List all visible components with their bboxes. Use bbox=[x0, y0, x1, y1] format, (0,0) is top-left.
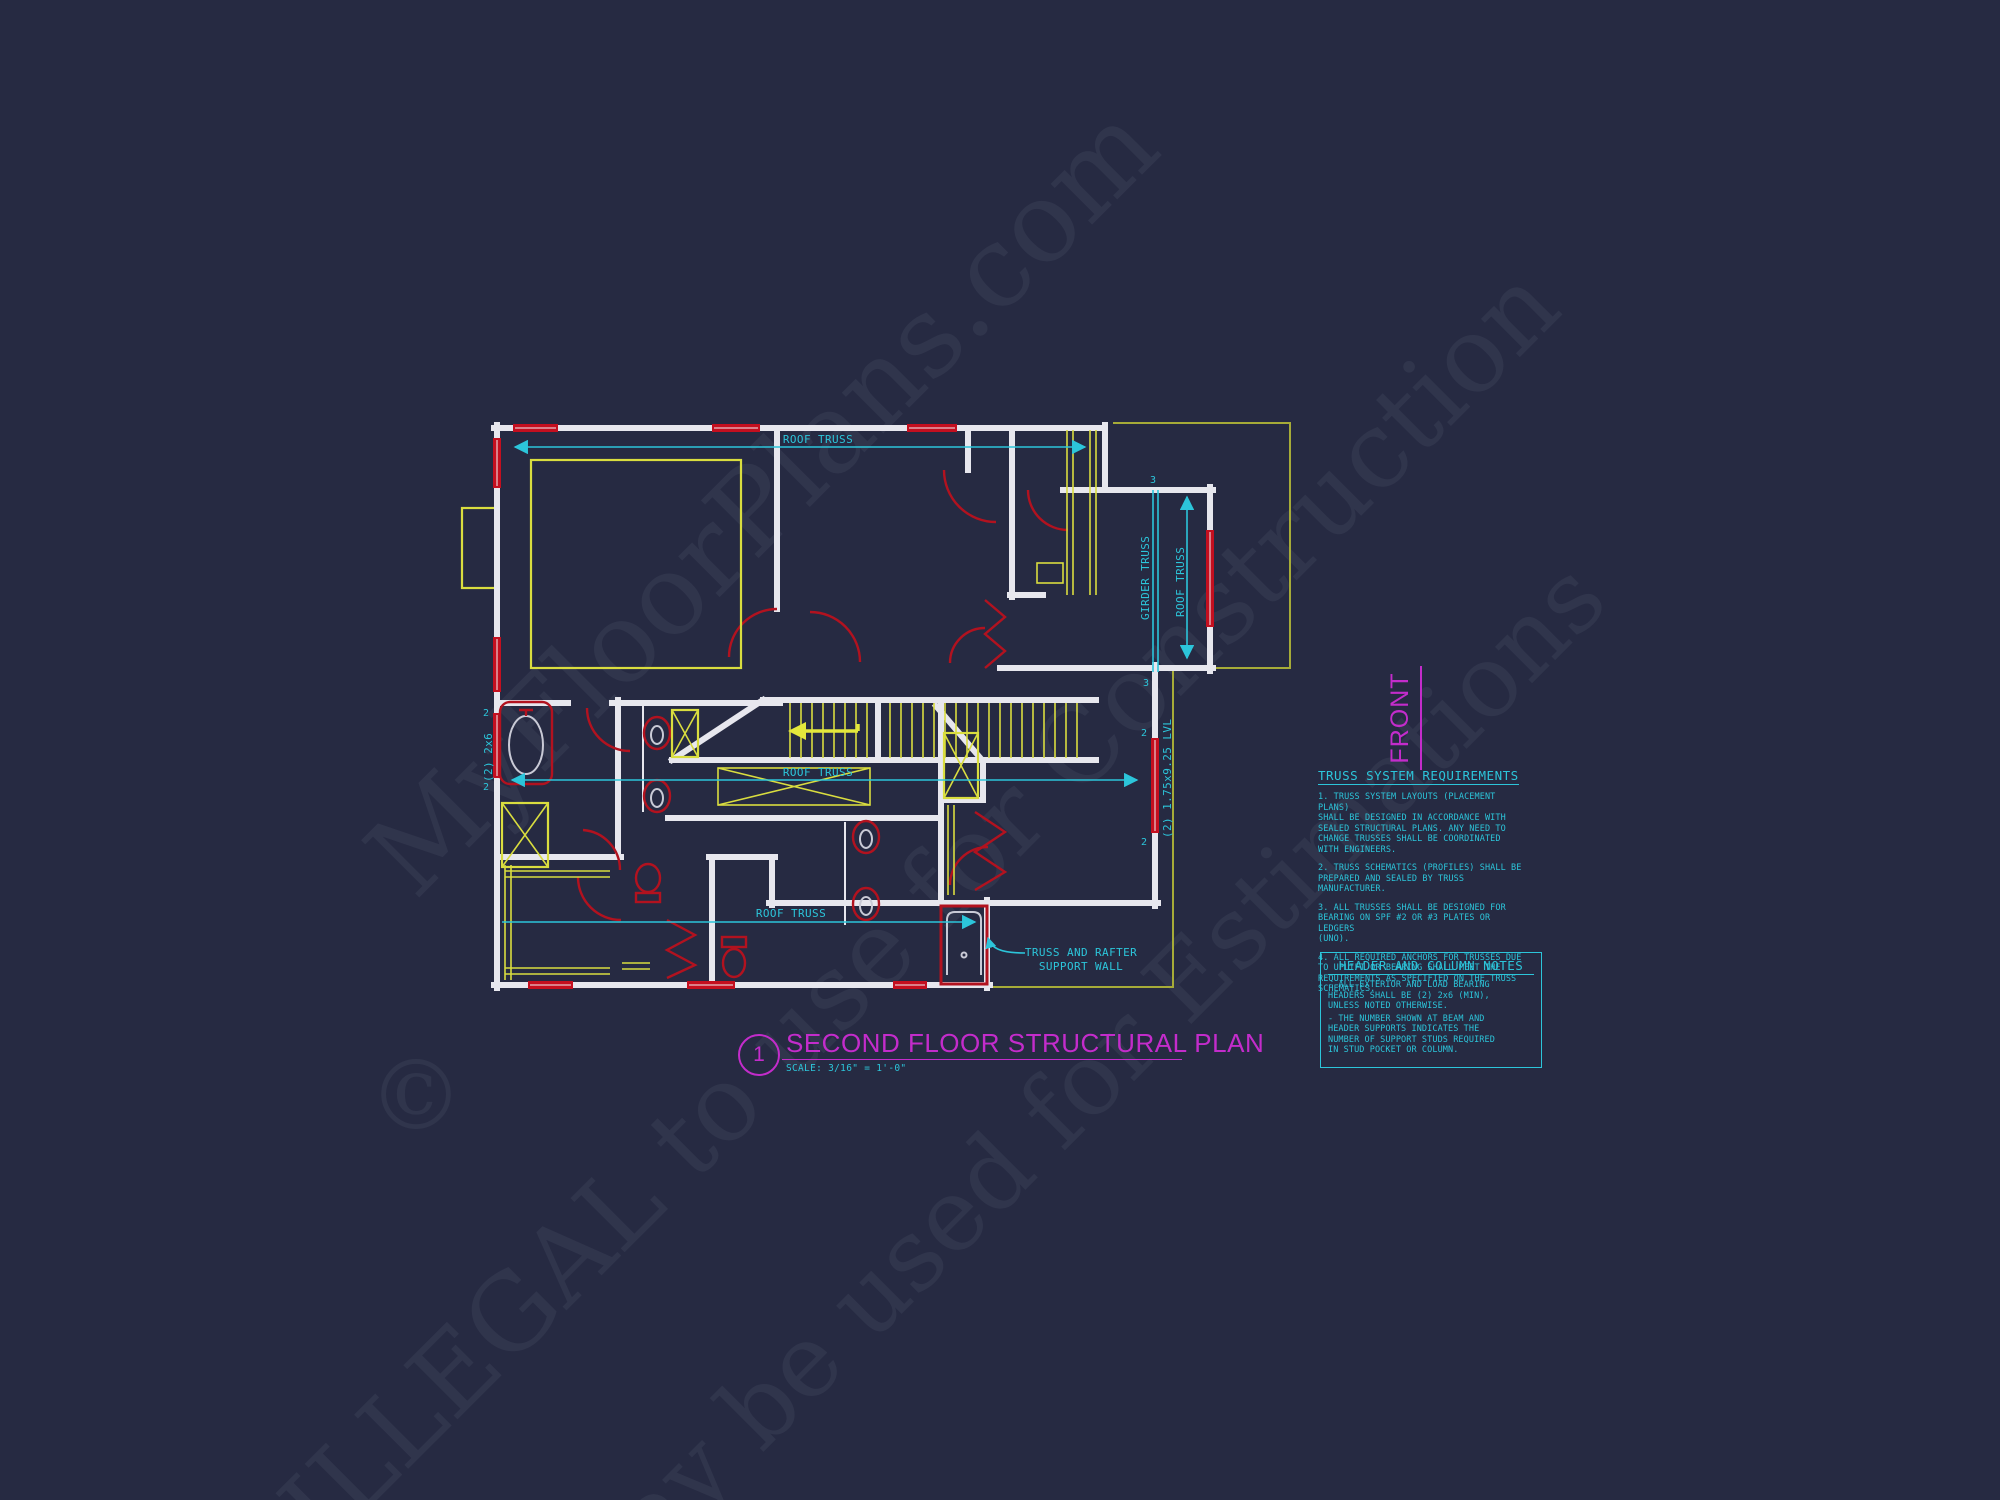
toilet bbox=[636, 864, 660, 902]
page-title: SECOND FLOOR STRUCTURAL PLAN bbox=[786, 1028, 1186, 1059]
roof-truss-label: ROOF TRUSS bbox=[756, 907, 826, 920]
corner-closet bbox=[944, 733, 978, 798]
stud-count: 3 bbox=[1143, 678, 1149, 689]
support-wall-label: SUPPORT WALL bbox=[1039, 960, 1123, 973]
note-item: 2. TRUSS SCHEMATICS (PROFILES) SHALL BE … bbox=[1318, 863, 1530, 895]
bathtub bbox=[500, 702, 552, 784]
stud-count: 3 bbox=[1150, 475, 1156, 486]
roof-truss-label: ROOF TRUSS bbox=[1174, 547, 1187, 617]
stud-count: 2 bbox=[1141, 728, 1147, 739]
sink bbox=[853, 821, 879, 853]
sink bbox=[644, 717, 670, 749]
closet-shelving bbox=[505, 805, 954, 980]
header-and-column-notes: HEADER AND COLUMN NOTES - ALL EXTERIOR A… bbox=[1320, 952, 1542, 1068]
front-orientation-label: FRONT bbox=[1386, 666, 1422, 770]
yellow-elements bbox=[502, 430, 1096, 980]
notes-title: TRUSS SYSTEM REQUIREMENTS bbox=[1318, 768, 1519, 785]
stair-railing bbox=[1037, 430, 1096, 595]
stud-count: 2 bbox=[483, 782, 489, 793]
title-underline bbox=[782, 1059, 1182, 1060]
detail-number-bubble: 1 bbox=[738, 1034, 780, 1076]
note-item: - ALL EXTERIOR AND LOAD BEARING HEADERS … bbox=[1328, 980, 1534, 1012]
roof-truss-label: ROOF TRUSS bbox=[783, 766, 853, 779]
sink bbox=[644, 780, 670, 812]
fixtures bbox=[500, 702, 987, 984]
girder-truss-label: GIRDER TRUSS bbox=[1139, 536, 1152, 620]
open-room-outline bbox=[531, 460, 741, 668]
support-wall-label: TRUSS AND RAFTER bbox=[1025, 946, 1137, 959]
floor-plan-drawing: ROOF TRUSS ROOF TRUSS ROOF TRUSS GIRDER … bbox=[0, 0, 2000, 1500]
chimney-outline bbox=[462, 508, 497, 588]
stud-count: 2 bbox=[1141, 837, 1147, 848]
note-item: - THE NUMBER SHOWN AT BEAM AND HEADER SU… bbox=[1328, 1014, 1534, 1056]
scale-note: SCALE: 3/16" = 1'-0" bbox=[786, 1063, 906, 1074]
toilet bbox=[722, 937, 746, 977]
detail-number: 1 bbox=[753, 1043, 765, 1067]
header-size-label: (2) 2x6 bbox=[482, 733, 495, 782]
note-item: 3. ALL TRUSSES SHALL BE DESIGNED FOR BEA… bbox=[1318, 903, 1530, 945]
roof-truss-label: ROOF TRUSS bbox=[783, 433, 853, 446]
lvl-beam-label: (2) 1.75x9.25 LVL bbox=[1161, 719, 1174, 838]
leader-line bbox=[988, 938, 1025, 953]
bifold-door bbox=[985, 600, 1005, 668]
girder-truss-line bbox=[1153, 490, 1158, 672]
shower bbox=[941, 906, 987, 984]
drawing-sheet: © MyFloorPlans.com ILLEGAL to use for Co… bbox=[0, 0, 2000, 1500]
bifold-door bbox=[975, 812, 1005, 890]
note-item: 1. TRUSS SYSTEM LAYOUTS (PLACEMENT PLANS… bbox=[1318, 792, 1530, 855]
notes-title: HEADER AND COLUMN NOTES bbox=[1328, 958, 1534, 975]
stud-count: 2 bbox=[483, 708, 489, 719]
bifold-door bbox=[667, 920, 695, 978]
